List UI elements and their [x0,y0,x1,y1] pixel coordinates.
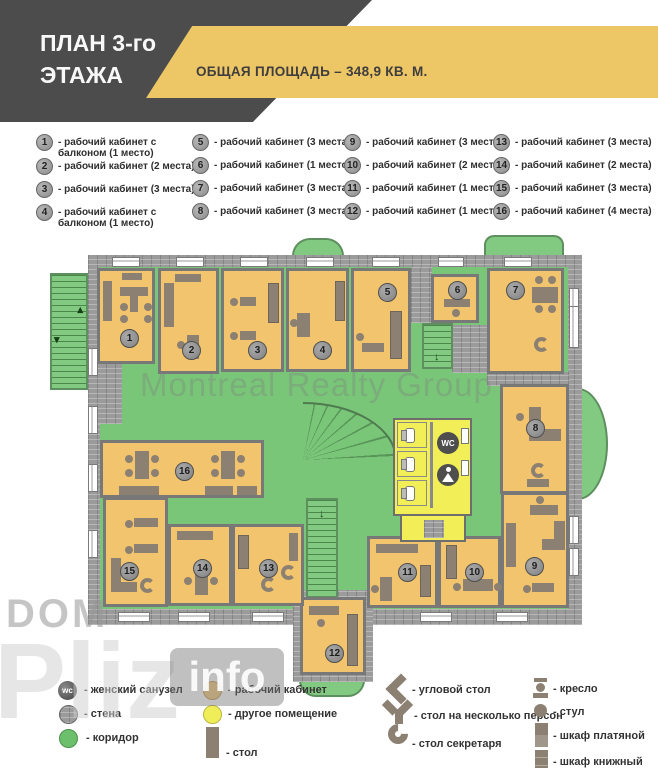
window [112,257,140,267]
desk-icon [362,343,384,352]
wall-segment [452,325,487,373]
legend-item: 14- рабочий кабинет (2 места) [493,157,653,180]
desk-icon [122,273,142,280]
window [178,612,210,622]
other-room-icon [203,705,222,724]
page-title-line2: ЭТАЖА [40,60,156,92]
wardrobe-icon [238,535,249,569]
sofa-icon [164,283,174,327]
sofa-icon [237,486,257,495]
legend-label: - угловой стол [412,684,491,696]
room-11: 11 [367,536,438,608]
chair-icon [536,496,544,504]
legend-item: 10- рабочий кабинет (2 места) [344,157,492,180]
chair-icon [290,319,298,327]
room-9: 9 [501,492,569,608]
room-number-icon: 8 [192,203,209,220]
chair-icon [230,298,238,306]
room-2: 2 [158,268,219,374]
window [306,257,334,267]
wardrobe-icon [347,614,358,666]
legend-item: 5- рабочий кабинет (3 места) [192,134,342,157]
armchair-icon [531,463,546,478]
legend-item: 9- рабочий кабинет (3 места) [344,134,492,157]
desk-icon [376,544,418,553]
armchair-icon [261,577,276,592]
room-number-icon: 9 [344,134,361,151]
window [420,612,452,622]
legend-item: 11- рабочий кабинет (1 место) [344,180,492,203]
chair-icon [535,305,543,313]
chair-icon [237,455,245,463]
window [240,257,268,267]
room-15: 15 [103,497,168,607]
legend-label: - другое помещение [228,708,337,720]
room-12: 12 [300,597,366,675]
chair-icon [125,455,133,463]
room-number-badge: 16 [175,462,194,481]
balcony-top-2 [484,235,564,256]
room-number-badge: 2 [182,341,201,360]
armchair-icon [140,578,155,593]
desk-icon [240,331,256,340]
wc-room: WC [393,418,472,516]
room-number-icon: 7 [192,180,209,197]
room-number-badge: 7 [506,281,525,300]
radiator-icon [461,460,469,476]
desk-icon [120,287,148,296]
legend-label: - шкаф книжный [553,756,643,768]
legend-item: 12- рабочий кабинет (1 место) [344,203,492,226]
room-number-icon: 13 [493,134,510,151]
window [176,257,204,267]
desk-icon [527,479,549,487]
window [118,612,150,622]
desk-icon [530,505,558,515]
legend-item: 4- рабочий кабинет с балконом (1 место) [36,204,188,227]
legend-item: 16- рабочий кабинет (4 места) [493,203,653,226]
desk-icon [297,313,310,337]
legend-label: - кресло [553,683,598,695]
wc-sign-icon: WC [437,432,459,454]
desk-icon [221,451,235,479]
room-number-icon: 12 [344,203,361,220]
chair-icon [516,413,524,421]
legend-label: - стол [226,747,258,759]
desk-icon [380,577,392,601]
window [569,516,579,544]
room-number-badge: 10 [465,563,484,582]
toilet-stall [397,451,427,477]
room-number-icon: 4 [36,204,53,221]
desk-icon [134,518,158,527]
desk-icon [111,582,137,592]
sofa-icon [119,486,159,495]
chair-icon [211,455,219,463]
toilet-tank-icon [401,488,407,499]
legend-label: - рабочий кабинет [228,684,327,696]
room-number-badge: 13 [259,559,278,578]
page-title: ПЛАН 3-го ЭТАЖА [40,28,156,91]
room-number-badge: 3 [248,341,267,360]
chair-icon [548,276,556,284]
page-title-line1: ПЛАН 3-го [40,28,156,60]
legend-item: 7- рабочий кабинет (3 места) [192,180,342,203]
room-number-icon: 15 [493,180,510,197]
chair-icon [230,332,238,340]
room-number-icon: 2 [36,158,53,175]
window [252,612,284,622]
legend-item: 15- рабочий кабинет (3 места) [493,180,653,203]
chair-icon [356,333,364,341]
total-area-banner: ОБЩАЯ ПЛОЩАДЬ – 348,9 КВ. М. [196,64,428,79]
wardrobe-icon [268,283,279,323]
toilet-stall [397,422,427,448]
secretary-desk-icon [384,720,412,748]
staircase-vertical: ↓ [306,498,338,598]
legend-label: - женский санузел [84,684,183,696]
room-5: 5 [351,268,411,372]
sofa-icon [289,533,298,561]
room-16: 16 [100,440,264,498]
chair-icon [144,303,152,311]
room-number-icon: 3 [36,181,53,198]
legend-label: - стул [553,706,584,718]
room-number-badge: 4 [313,341,332,360]
legend-item: 6- рабочий кабинет (1 место) [192,157,342,180]
balcony-left-stairs: ▾▴ [50,273,88,390]
room-4: 4 [286,268,349,372]
sofa-icon [506,523,516,567]
room-8: 8 [500,384,569,494]
chair-icon [125,546,133,554]
desk-icon [532,287,558,303]
window [569,548,579,576]
room-number-badge: 15 [120,562,139,581]
desk-icon [532,583,554,592]
desk-icon [444,299,470,307]
legend-item: 8- рабочий кабинет (3 места) [192,203,342,226]
staircase-small: ↓ [422,323,453,369]
desk-icon [175,274,201,282]
sofa-icon [205,486,233,495]
desk-icon [130,296,138,312]
room-13: 13 [232,524,304,606]
window [569,306,579,348]
legend-top-col1: 1- рабочий кабинет с балконом (1 место) … [36,134,188,227]
bookcase-icon [535,750,548,768]
room-number-icon: 5 [192,134,209,151]
toilet-tank-icon [401,459,407,470]
room-number-badge: 9 [525,557,544,576]
room-1: 1 [97,268,155,364]
room-number-badge: 1 [120,329,139,348]
chair-icon [371,585,379,593]
person-body-icon [442,473,454,482]
chair-icon [151,469,159,477]
wardrobe-icon [420,565,431,597]
window [504,257,532,267]
room-number-badge: 8 [526,419,545,438]
office-icon [203,681,222,700]
floor-plan-page: ПЛАН 3-го ЭТАЖА ОБЩАЯ ПЛОЩАДЬ – 348,9 КВ… [0,0,658,768]
room-number-icon: 11 [344,180,361,197]
toilet-tank-icon [401,430,407,441]
room-number-badge: 11 [398,563,417,582]
desk-icon [134,544,158,553]
radiator-icon [461,428,469,444]
room-10: 10 [438,536,501,608]
room-number-icon: 10 [344,157,361,174]
chair-icon [548,305,556,313]
chair-icon [184,577,192,585]
room-3: 3 [221,268,284,372]
wc-icon: wc [58,681,77,700]
chair-icon [120,303,128,311]
room-number-icon: 14 [493,157,510,174]
window [88,406,98,434]
legend-item: 13- рабочий кабинет (3 места) [493,134,653,157]
chair-icon [453,583,461,591]
chair-icon [210,577,218,585]
legend-label: - шкаф платяной [553,730,645,742]
armchair-icon [533,678,548,698]
room-number-badge: 6 [448,281,467,300]
chair-icon [523,585,531,593]
legend-item: 1- рабочий кабинет с балконом (1 место) [36,134,188,158]
chair-icon [534,704,547,717]
wardrobe-icon [390,311,402,359]
legend-label: - коридор [86,732,139,744]
window [88,530,98,558]
toilet-stall [397,480,427,506]
wall-segment [424,520,444,538]
chair-icon [125,520,133,528]
chair-icon [211,469,219,477]
legend-top-col2: 5- рабочий кабинет (3 места) 6- рабочий … [192,134,342,226]
room-number-badge: 12 [325,644,344,663]
room-number-icon: 1 [36,134,53,151]
chair-icon [151,455,159,463]
chair-icon [120,315,128,323]
window [372,257,400,267]
balcony-top-1 [292,238,344,256]
room-number-badge: 5 [378,283,397,302]
desk-icon [206,727,219,758]
chair-icon [317,619,325,627]
floor-plan: ▾▴ ↓ ↓ 1 2 3 4 5 6 7 8 9 10 11 12 [0,230,658,700]
armchair-icon [281,565,296,580]
chair-icon [237,469,245,477]
desk-icon [177,531,213,540]
chair-icon [535,276,543,284]
window [438,257,464,267]
legend-label: - стена [84,708,121,720]
woman-sign-icon [437,464,459,486]
wall-segment [411,267,432,323]
wardrobe-icon [335,281,345,321]
room-number-badge: 14 [193,559,212,578]
room-14: 14 [168,524,232,606]
desk-icon [309,606,339,615]
wall-icon [59,705,78,724]
desk-icon [542,539,565,550]
legend-top-col3: 9- рабочий кабинет (3 места) 10- рабочий… [344,134,492,226]
desk-icon [240,297,256,306]
chair-icon [452,309,460,317]
room-number-icon: 6 [192,157,209,174]
chair-icon [125,469,133,477]
room-number-icon: 16 [493,203,510,220]
legend-item: 3- рабочий кабинет (3 места) [36,181,188,204]
legend-top-col4: 13- рабочий кабинет (3 места) 14- рабочи… [493,134,653,226]
room-6: 6 [431,274,479,323]
window [496,612,528,622]
multi-desk-icon [385,700,411,724]
person-head-icon [446,467,451,472]
room-7: 7 [487,268,564,374]
chair-icon [494,583,502,591]
legend-item: 2- рабочий кабинет (2 места) [36,158,188,181]
balcony-right [578,388,608,500]
window [88,464,98,492]
chair-icon [144,315,152,323]
legend-label: - стол секретаря [412,738,502,750]
wardrobe-icon [535,723,548,747]
wardrobe-icon [446,545,457,579]
desk-icon [135,451,149,479]
wc-divider-wall [430,422,433,508]
sofa-icon [103,281,112,321]
corridor-icon [59,729,78,748]
armchair-icon [534,337,549,352]
